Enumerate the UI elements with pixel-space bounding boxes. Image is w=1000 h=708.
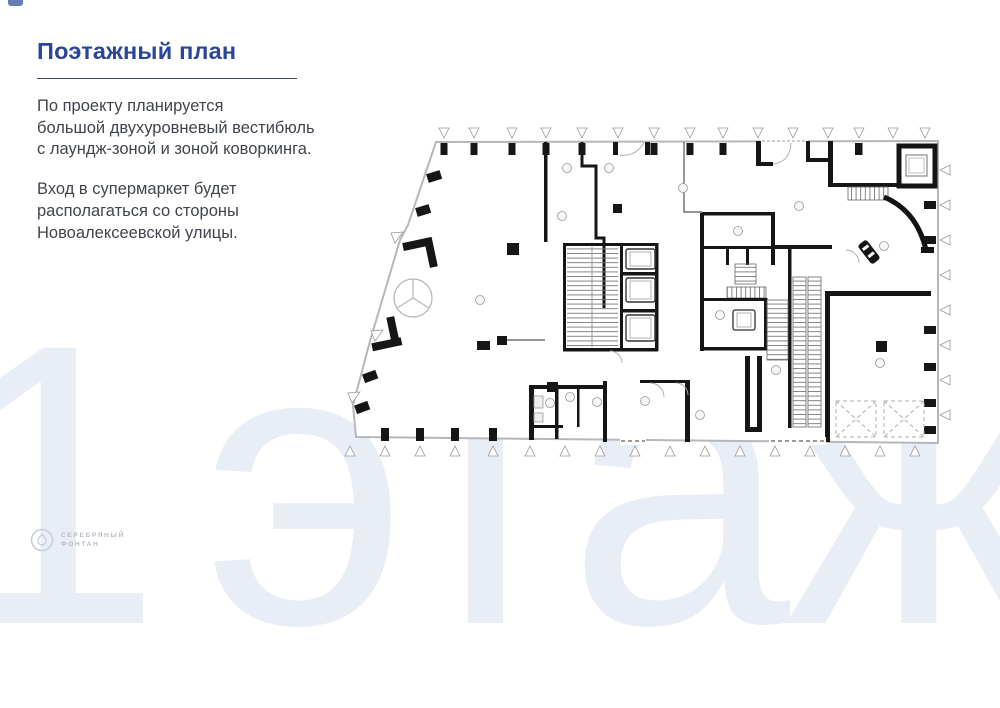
intro-line-3: с лаундж-зоной и зоной коворкинга. [37,140,312,158]
elevator-car-icon [626,249,655,269]
logo-line-2: ФОНТАН [61,540,125,549]
entrance-line-1: Вход в супермаркет будет [37,180,237,198]
intro-line-1: По проекту планируется [37,97,223,115]
fountain-emblem-icon [30,528,54,552]
elevator-car-icon [733,310,755,330]
title-underline [37,78,297,79]
text-column: Поэтажный план По проекту планируется бо… [37,38,347,244]
slide: 1 этаж Поэтажный план По проекту планиру… [0,0,1000,617]
developer-logo: СЕРЕБРЯНЫЙ ФОНТАН [30,528,125,552]
floor-plan-drawing [330,108,1000,458]
intro-paragraph: По проекту планируется большой двухуровн… [37,96,347,161]
entrance-paragraph: Вход в супермаркет будет располагаться с… [37,179,347,244]
entrance-line-2: располагаться со стороны [37,202,239,220]
elevator-car-icon [626,278,655,302]
page-title: Поэтажный план [37,38,347,65]
corner-accent-mark [8,0,23,6]
elevator-car-icon [626,315,655,341]
logo-line-1: СЕРЕБРЯНЫЙ [61,531,125,540]
logo-text: СЕРЕБРЯНЫЙ ФОНТАН [61,531,125,549]
intro-line-2: большой двухуровневый вестибюль [37,119,315,137]
entrance-line-3: Новоалексеевской улицы. [37,224,238,242]
